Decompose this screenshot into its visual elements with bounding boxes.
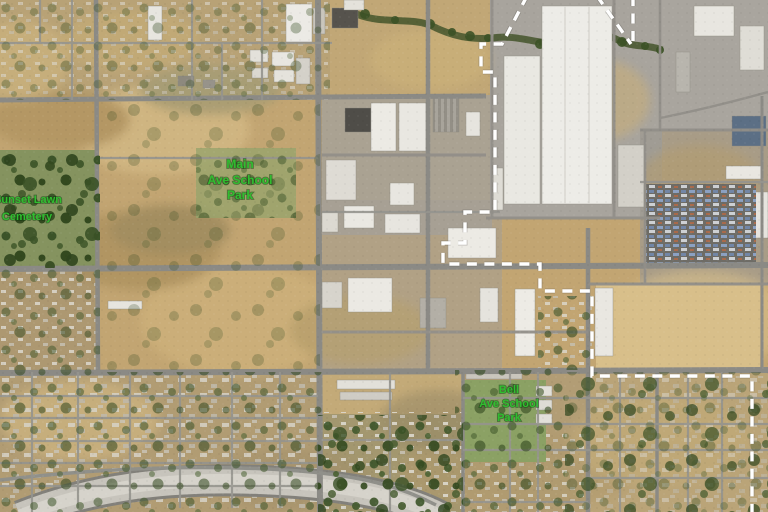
- svg-text:Park: Park: [227, 188, 253, 202]
- satellite-map-view[interactable]: Sunset Lawn Cemetery Main Ave School Par…: [0, 0, 768, 512]
- noise-texture-overlay: [0, 0, 768, 512]
- svg-text:Sunset Lawn: Sunset Lawn: [0, 194, 62, 206]
- svg-text:Main: Main: [226, 157, 253, 171]
- svg-text:Ave School: Ave School: [479, 398, 539, 410]
- svg-text:Bell: Bell: [499, 384, 519, 396]
- svg-text:Ave School: Ave School: [208, 173, 273, 187]
- satellite-map-canvas: Sunset Lawn Cemetery Main Ave School Par…: [0, 0, 768, 512]
- svg-text:Cemetery: Cemetery: [2, 211, 53, 223]
- svg-text:Park: Park: [497, 412, 522, 424]
